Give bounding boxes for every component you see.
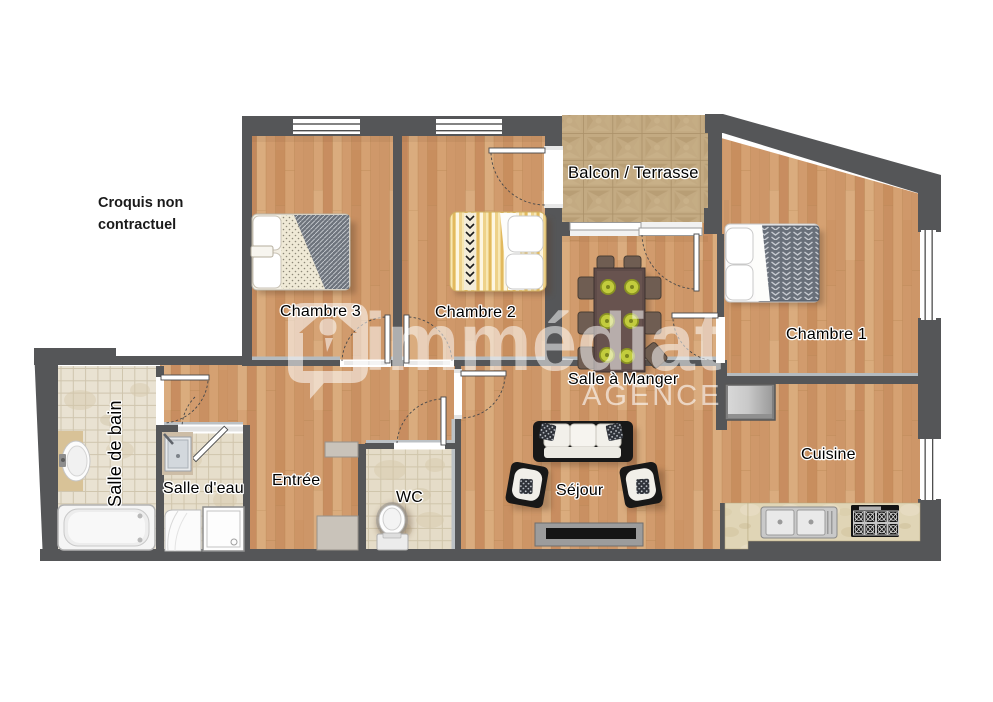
svg-text:Salle d'eau: Salle d'eau	[163, 480, 244, 497]
svg-text:Chambre 2: Chambre 2	[435, 304, 516, 321]
svg-text:Croquis non: Croquis non	[98, 195, 183, 211]
svg-text:Balcon / Terrasse: Balcon / Terrasse	[568, 164, 699, 182]
svg-text:WC: WC	[396, 489, 423, 506]
svg-text:Séjour: Séjour	[556, 482, 604, 499]
svg-text:Chambre 3: Chambre 3	[280, 303, 361, 320]
svg-text:contractuel: contractuel	[98, 217, 176, 233]
svg-text:Cuisine: Cuisine	[801, 446, 856, 463]
svg-text:Chambre 1: Chambre 1	[786, 326, 867, 343]
svg-text:Salle à Manger: Salle à Manger	[568, 371, 679, 388]
svg-text:Salle de bain: Salle de bain	[105, 400, 125, 507]
svg-text:Entrée: Entrée	[272, 472, 320, 489]
